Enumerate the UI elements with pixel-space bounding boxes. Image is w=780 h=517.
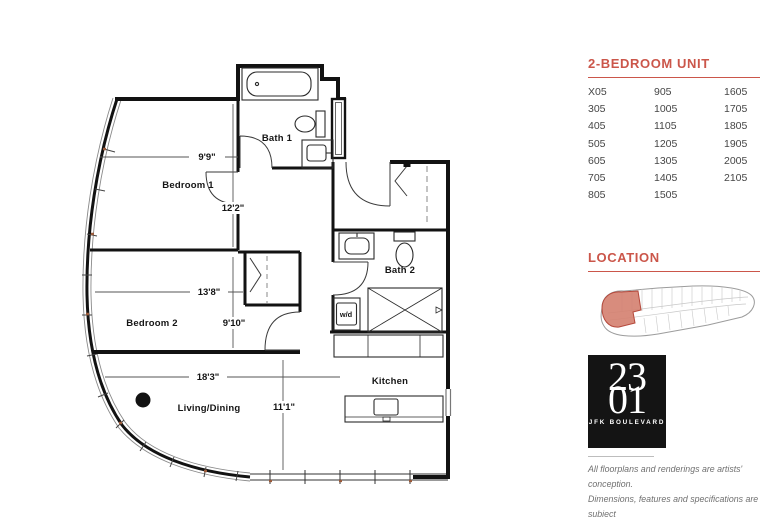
unit-number: 805 — [588, 187, 654, 204]
window-wall-bottom — [250, 470, 450, 484]
label-bath1: Bath 1 — [262, 133, 293, 144]
floor-plan-area: 9'9" 12'2" 13'8" 9'10" 18'3" 11'1" Bath … — [0, 0, 560, 517]
unit-column-2: 905 1005 1105 1205 1305 1405 1505 — [654, 84, 724, 204]
dim-bedroom1-width: 9'9" — [198, 152, 215, 163]
room-labels: Bath 1 Bedroom 1 Bedroom 2 Bath 2 Kitche… — [126, 133, 415, 414]
unit-number: 1205 — [654, 136, 724, 153]
unit-number: 1805 — [724, 118, 760, 135]
chase — [332, 99, 345, 158]
entry-door — [346, 162, 390, 206]
floor-plan-drawing: 9'9" 12'2" 13'8" 9'10" 18'3" 11'1" Bath … — [0, 0, 560, 517]
unit-number: 1605 — [724, 84, 760, 101]
brand-logo: 23 01 JFK BOULEVARD — [588, 355, 666, 448]
unit-number: 1005 — [654, 101, 724, 118]
floorplan-brochure-page: 9'9" 12'2" 13'8" 9'10" 18'3" 11'1" Bath … — [0, 0, 780, 517]
bedroom2-closet-bifold — [250, 258, 261, 292]
label-bedroom2: Bedroom 2 — [126, 318, 177, 329]
unit-number-table: X05 305 405 505 605 705 805 905 1005 110… — [588, 84, 760, 204]
unit-number: 1905 — [724, 136, 760, 153]
label-kitchen: Kitchen — [372, 376, 408, 387]
location-key-plan — [588, 282, 760, 346]
bath1-vanity-sink — [302, 140, 333, 168]
kitchen-counter-top — [334, 335, 443, 357]
dim-living-width: 18'3" — [197, 372, 220, 383]
fixtures — [136, 68, 444, 422]
label-bath2: Bath 2 — [385, 265, 415, 276]
dim-bedroom2-width: 13'8" — [198, 287, 221, 298]
unit-number: X05 — [588, 84, 654, 101]
bath1-toilet — [295, 111, 325, 137]
location-panel-title: LOCATION — [588, 250, 760, 272]
divider-rule — [588, 456, 654, 457]
disclaimer-text: All floorplans and renderings are artist… — [588, 462, 768, 517]
disclaimer-line: Dimensions, features and specifications … — [588, 492, 768, 517]
unit-number: 2105 — [724, 170, 760, 187]
bath2-toilet — [394, 232, 415, 267]
unit-number: 605 — [588, 153, 654, 170]
dim-living-length: 11'1" — [273, 402, 295, 413]
disclaimer-line: All floorplans and renderings are artist… — [588, 462, 768, 492]
label-living-dining: Living/Dining — [178, 403, 241, 414]
unit-number: 705 — [588, 170, 654, 187]
dim-bedroom1-length: 12'2" — [222, 203, 245, 214]
dim-bedroom2-length: 9'10" — [223, 318, 246, 329]
bath2-vanity-sink — [339, 233, 374, 259]
highlighted-unit — [602, 291, 641, 327]
bath2-door — [333, 262, 368, 295]
unit-number: 1705 — [724, 101, 760, 118]
label-washer-dryer: w/d — [339, 310, 353, 319]
unit-column-3: 1605 1705 1805 1905 2005 2105 — [724, 84, 760, 204]
building-floorplate — [588, 282, 760, 346]
bedroom2-door — [265, 312, 300, 350]
shower — [368, 288, 442, 332]
unit-column-1: X05 305 405 505 605 705 805 — [588, 84, 654, 204]
logo-subtitle: JFK BOULEVARD — [588, 419, 666, 426]
right-wall-window — [446, 389, 451, 416]
logo-line-01: 01 — [588, 383, 666, 417]
unit-number: 1505 — [654, 187, 724, 204]
kitchen-island-sink — [345, 396, 443, 422]
unit-number: 305 — [588, 101, 654, 118]
unit-number: 505 — [588, 136, 654, 153]
structural-column — [136, 393, 151, 408]
unit-panel-title: 2-BEDROOM UNIT — [588, 56, 760, 78]
unit-number: 1305 — [654, 153, 724, 170]
entry-closet-bifold — [395, 166, 407, 196]
label-bedroom1: Bedroom 1 — [162, 180, 214, 191]
unit-number: 405 — [588, 118, 654, 135]
unit-number: 1405 — [654, 170, 724, 187]
info-sidebar: 2-BEDROOM UNIT X05 305 405 505 605 705 8… — [588, 0, 766, 517]
unit-number: 1105 — [654, 118, 724, 135]
bathtub — [242, 68, 318, 100]
unit-number: 2005 — [724, 153, 760, 170]
unit-number: 905 — [654, 84, 724, 101]
